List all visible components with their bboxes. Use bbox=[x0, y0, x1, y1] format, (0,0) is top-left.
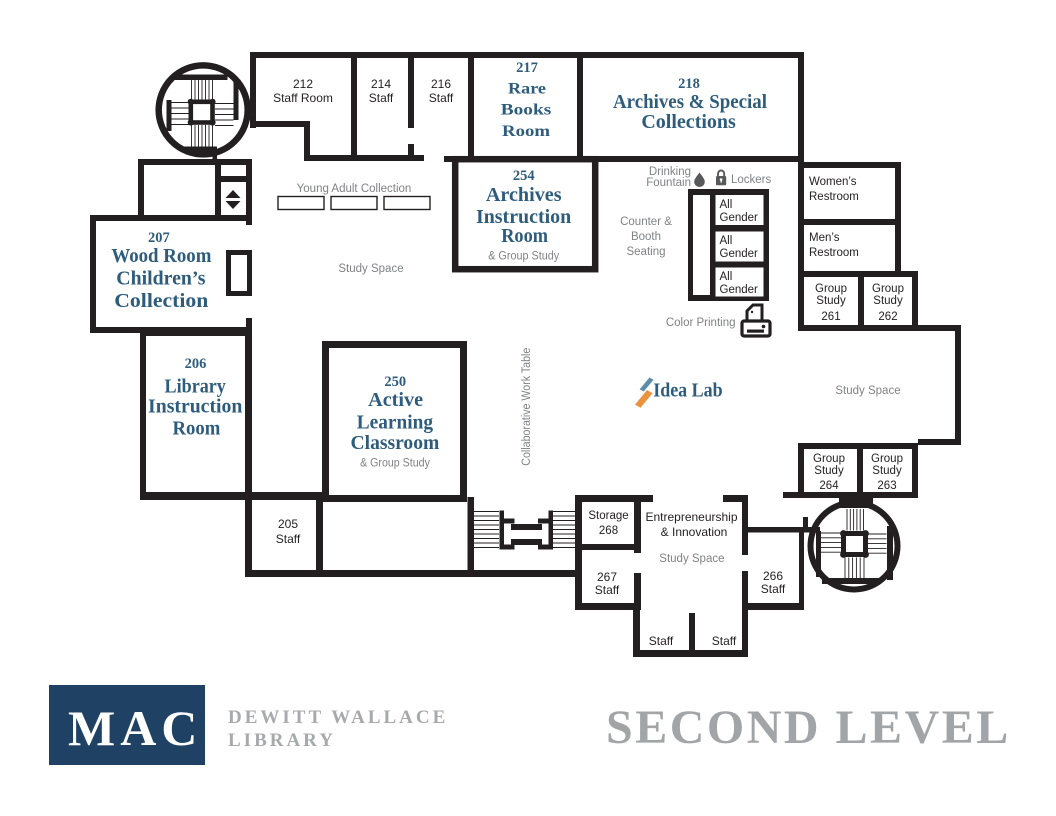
svg-text:Young Adult Collection: Young Adult Collection bbox=[297, 183, 412, 195]
svg-text:206: 206 bbox=[185, 356, 207, 372]
svg-text:Staff: Staff bbox=[649, 634, 674, 648]
svg-text:Study: Study bbox=[814, 465, 844, 477]
svg-text:Group: Group bbox=[871, 453, 903, 465]
svg-text:Study Space: Study Space bbox=[659, 553, 724, 565]
svg-text:Study Space: Study Space bbox=[835, 385, 900, 397]
svg-text:262: 262 bbox=[878, 311, 897, 323]
svg-text:Color Printing: Color Printing bbox=[666, 317, 736, 329]
svg-text:266: 266 bbox=[763, 569, 783, 583]
svg-text:Wood Room: Wood Room bbox=[111, 245, 211, 267]
svg-text:Group: Group bbox=[872, 283, 904, 295]
svg-text:Instruction: Instruction bbox=[148, 396, 243, 418]
svg-text:Women’s: Women’s bbox=[809, 176, 857, 188]
svg-text:All: All bbox=[720, 271, 733, 283]
svg-text:212: 212 bbox=[293, 77, 313, 91]
svg-text:218: 218 bbox=[678, 76, 700, 92]
svg-text:Restroom: Restroom bbox=[809, 247, 859, 259]
svg-text:264: 264 bbox=[819, 480, 839, 492]
svg-text:& Group Study: & Group Study bbox=[488, 251, 559, 263]
svg-text:Room: Room bbox=[173, 418, 221, 440]
svg-text:Storage: Storage bbox=[588, 510, 628, 522]
svg-text:Collaborative Work Table: Collaborative Work Table bbox=[521, 348, 533, 466]
svg-text:267: 267 bbox=[597, 570, 617, 584]
svg-text:All: All bbox=[720, 235, 733, 247]
svg-text:Archives: Archives bbox=[486, 184, 562, 206]
svg-text:Seating: Seating bbox=[626, 246, 665, 258]
svg-text:Gender: Gender bbox=[720, 248, 759, 260]
svg-text:214: 214 bbox=[371, 77, 391, 91]
svg-text:250: 250 bbox=[384, 374, 406, 390]
svg-text:Booth: Booth bbox=[631, 231, 661, 243]
svg-text:Study: Study bbox=[872, 465, 902, 477]
svg-text:Active: Active bbox=[368, 389, 423, 411]
svg-text:Children’s: Children’s bbox=[116, 267, 205, 289]
svg-text:Library: Library bbox=[165, 375, 227, 397]
svg-text:SECOND LEVEL: SECOND LEVEL bbox=[606, 701, 1011, 754]
svg-text:Collections: Collections bbox=[641, 111, 736, 133]
svg-text:Entrepreneurship: Entrepreneurship bbox=[645, 510, 737, 524]
svg-text:Books: Books bbox=[501, 102, 552, 119]
svg-text:Fountain: Fountain bbox=[646, 177, 691, 189]
svg-text:Men’s: Men’s bbox=[809, 232, 840, 244]
svg-text:Group: Group bbox=[813, 453, 845, 465]
svg-text:& Group Study: & Group Study bbox=[360, 458, 430, 470]
svg-text:Staff: Staff bbox=[761, 582, 786, 596]
svg-text:205: 205 bbox=[278, 517, 298, 531]
svg-text:Lockers: Lockers bbox=[731, 174, 772, 186]
svg-text:& Innovation: & Innovation bbox=[661, 525, 728, 539]
svg-text:263: 263 bbox=[877, 480, 896, 492]
svg-text:207: 207 bbox=[148, 230, 170, 246]
svg-text:Idea Lab: Idea Lab bbox=[653, 380, 723, 402]
svg-text:Room: Room bbox=[501, 225, 548, 247]
svg-text:Archives & Special: Archives & Special bbox=[613, 91, 767, 113]
svg-text:Room: Room bbox=[502, 123, 551, 140]
svg-text:Restroom: Restroom bbox=[809, 191, 859, 203]
svg-text:Study: Study bbox=[873, 295, 903, 307]
svg-text:Gender: Gender bbox=[720, 284, 759, 296]
svg-text:Counter &: Counter & bbox=[620, 216, 672, 228]
svg-text:216: 216 bbox=[431, 77, 451, 91]
svg-text:Classroom: Classroom bbox=[351, 432, 440, 454]
svg-text:Staff: Staff bbox=[369, 91, 394, 105]
svg-text:Group: Group bbox=[815, 283, 847, 295]
svg-text:Rare: Rare bbox=[508, 81, 546, 98]
svg-text:Study: Study bbox=[816, 295, 846, 307]
svg-text:Staff: Staff bbox=[595, 583, 620, 597]
svg-text:Gender: Gender bbox=[720, 212, 759, 224]
svg-text:Collection: Collection bbox=[114, 290, 209, 312]
svg-text:MAC: MAC bbox=[68, 700, 202, 756]
svg-text:LIBRARY: LIBRARY bbox=[228, 730, 336, 751]
svg-text:261: 261 bbox=[821, 311, 840, 323]
svg-text:All: All bbox=[720, 199, 733, 211]
svg-text:Staff: Staff bbox=[429, 91, 454, 105]
svg-text:Staff: Staff bbox=[712, 634, 737, 648]
svg-text:268: 268 bbox=[599, 525, 618, 537]
svg-text:DEWITT WALLACE: DEWITT WALLACE bbox=[228, 707, 448, 728]
svg-text:Staff Room: Staff Room bbox=[273, 91, 333, 105]
svg-text:254: 254 bbox=[513, 168, 535, 184]
svg-text:Study Space: Study Space bbox=[338, 263, 403, 275]
svg-text:Staff: Staff bbox=[276, 532, 301, 546]
svg-text:217: 217 bbox=[516, 60, 538, 76]
svg-text:Learning: Learning bbox=[357, 412, 434, 434]
